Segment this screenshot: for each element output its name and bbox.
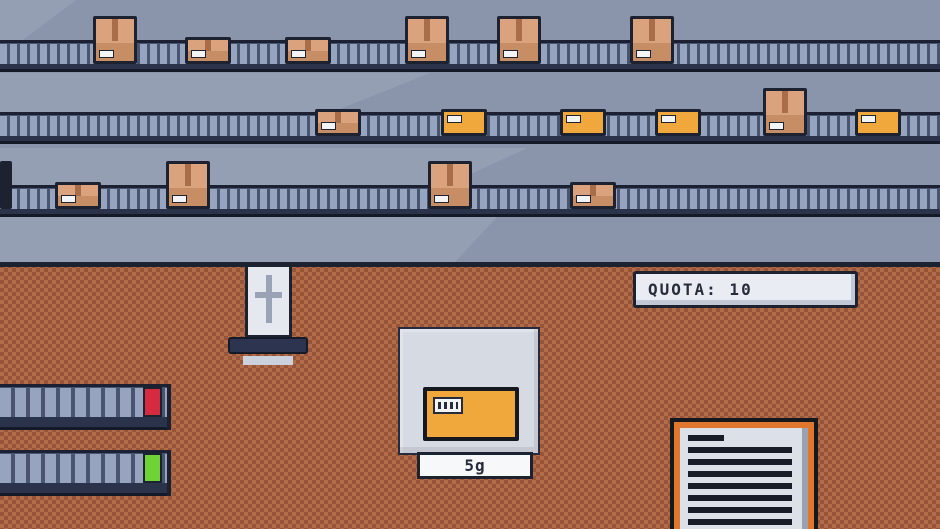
box-label	[191, 50, 206, 58]
box-label	[434, 195, 449, 203]
stamper-mark	[255, 292, 282, 298]
box-tape	[649, 19, 655, 41]
game-scene: QUOTA: 10 5g	[0, 0, 940, 529]
box-label	[576, 195, 591, 203]
box-tape	[516, 19, 522, 41]
package-wide-brown[interactable]	[185, 37, 231, 64]
package-on-scale[interactable]	[423, 387, 519, 441]
box-tape	[447, 164, 453, 186]
box-label	[61, 195, 76, 203]
package-wide-brown[interactable]	[570, 182, 616, 209]
box-label	[503, 50, 518, 58]
stamper-shadow	[243, 356, 293, 365]
package-tall-brown[interactable]	[763, 88, 807, 136]
scale-reading: 5g	[464, 456, 485, 475]
box-label	[636, 50, 651, 58]
package-edge-dark	[0, 161, 12, 209]
belt-slats	[0, 453, 167, 483]
box-label	[411, 50, 426, 58]
belt-slats	[0, 387, 167, 417]
box-label	[99, 50, 114, 58]
package-tall-brown[interactable]	[166, 161, 210, 209]
box-label	[566, 115, 581, 123]
package-yellow[interactable]	[855, 109, 901, 136]
box-label	[861, 115, 876, 123]
clipboard-title-line	[688, 435, 724, 441]
order-clipboard[interactable]	[670, 418, 818, 529]
package-tall-brown[interactable]	[428, 161, 472, 209]
package-tall-brown[interactable]	[497, 16, 541, 64]
stamper-device[interactable]	[245, 267, 292, 338]
box-tape	[424, 19, 430, 41]
stamper-mark	[266, 275, 272, 323]
box-label	[172, 195, 187, 203]
scale-display: 5g	[417, 452, 533, 479]
box-tape	[185, 164, 191, 186]
floor-conveyor-green	[0, 450, 171, 496]
clipboard-line	[688, 483, 792, 489]
stamper-head[interactable]	[228, 337, 308, 354]
belt-base	[0, 136, 940, 144]
box-tape	[112, 19, 118, 41]
clipboard-line	[688, 507, 792, 513]
clipboard-line	[688, 519, 792, 525]
package-tall-brown[interactable]	[630, 16, 674, 64]
clipboard-line	[688, 447, 792, 453]
belt-slats	[0, 43, 940, 64]
conveyor-belt-top	[0, 40, 940, 72]
clipboard-paper	[680, 428, 808, 529]
belt-base	[0, 483, 167, 496]
box-tape	[782, 91, 788, 113]
package-wide-brown[interactable]	[285, 37, 331, 64]
clipboard-line	[688, 495, 792, 501]
clipboard-line	[688, 459, 792, 465]
floor-conveyor-red	[0, 384, 171, 430]
package-label	[433, 397, 463, 414]
package-yellow[interactable]	[655, 109, 701, 136]
clipboard-text-lines	[688, 447, 794, 525]
package-wide-brown[interactable]	[55, 182, 101, 209]
box-label	[661, 115, 676, 123]
package-wide-brown[interactable]	[315, 109, 361, 136]
belt-base	[0, 417, 167, 430]
clipboard-line	[688, 471, 792, 477]
package-tall-brown[interactable]	[93, 16, 137, 64]
green-indicator-light	[143, 453, 162, 483]
box-label	[769, 122, 784, 130]
package-yellow[interactable]	[441, 109, 487, 136]
box-label	[447, 115, 462, 123]
red-indicator-light	[143, 387, 162, 417]
box-label	[321, 122, 336, 130]
quota-label: QUOTA: 10	[648, 280, 753, 299]
box-label	[291, 50, 306, 58]
package-tall-brown[interactable]	[405, 16, 449, 64]
quota-sign: QUOTA: 10	[633, 271, 858, 308]
belt-base	[0, 64, 940, 72]
belt-base	[0, 209, 940, 217]
package-yellow[interactable]	[560, 109, 606, 136]
